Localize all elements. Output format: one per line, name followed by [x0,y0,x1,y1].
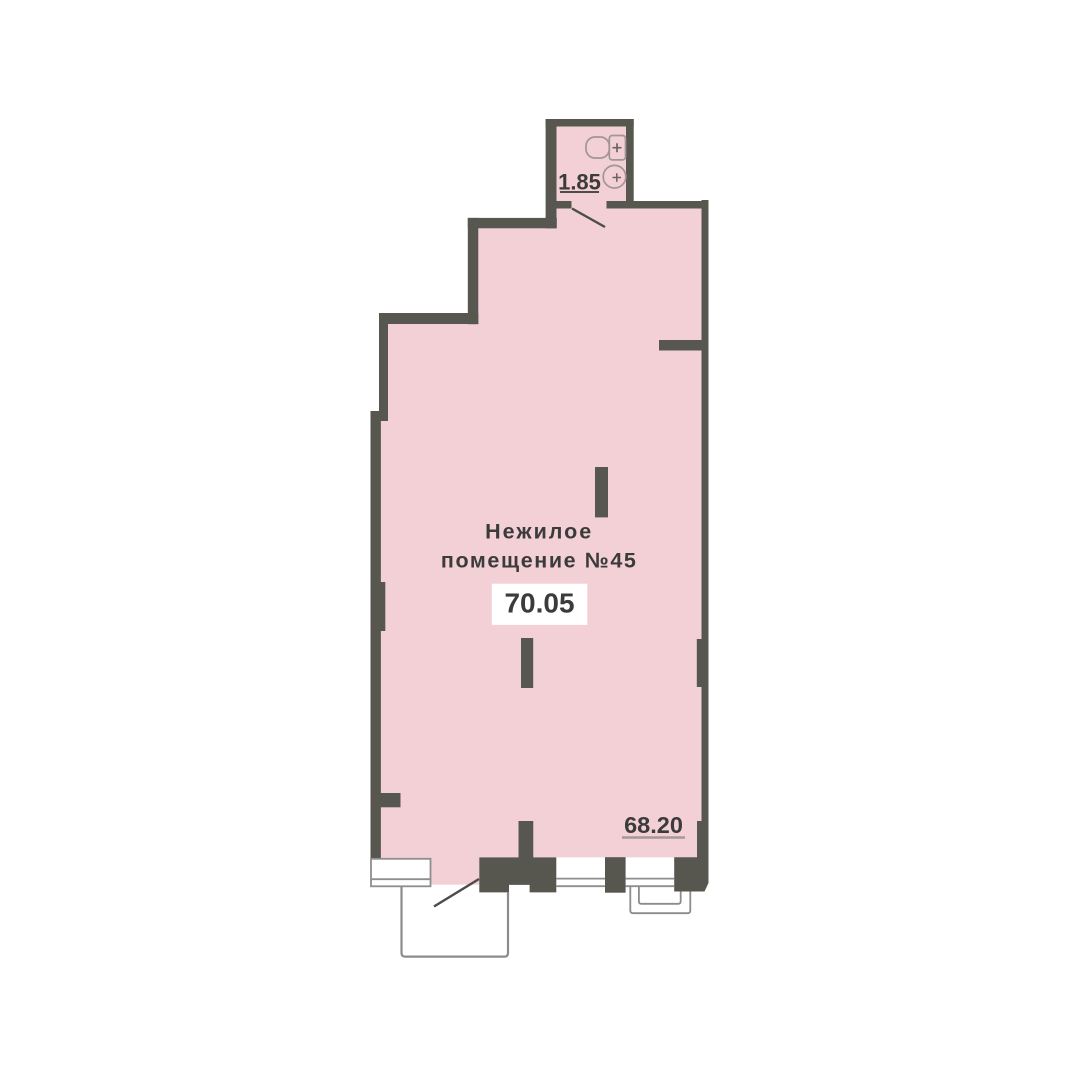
svg-text:Нежилое: Нежилое [485,520,593,544]
svg-text:70.05: 70.05 [504,588,574,619]
svg-text:помещение №45: помещение №45 [441,549,638,573]
svg-text:68.20: 68.20 [624,812,683,838]
svg-text:1.85: 1.85 [558,170,601,195]
